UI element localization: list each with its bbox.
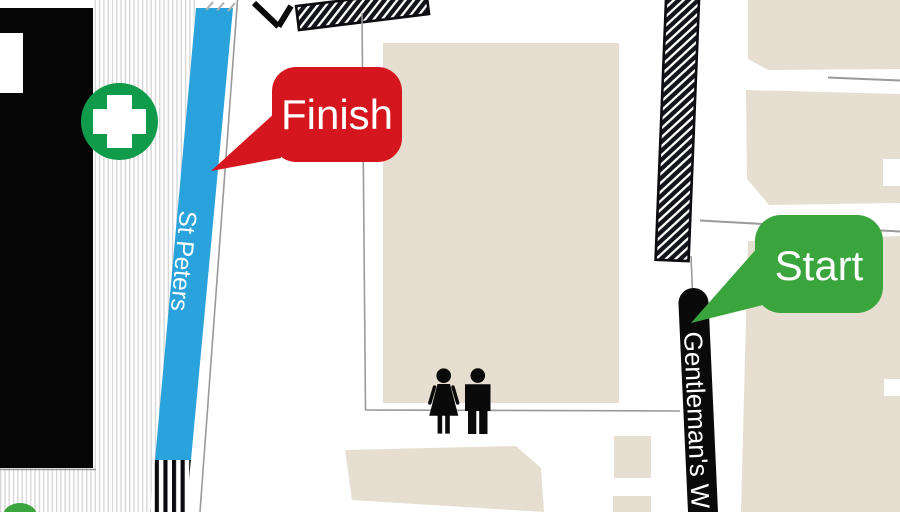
- race-route-map: St Peters: [0, 0, 900, 512]
- building-right-middle-notch: [883, 159, 900, 186]
- finish-label: Finish: [281, 91, 393, 138]
- black-building: [0, 8, 96, 470]
- building-right-bottom-notch: [884, 379, 900, 396]
- plaza-top-gap: [0, 0, 93, 8]
- pedestrian-crossing: [150, 459, 191, 512]
- building-small-b: [613, 496, 651, 512]
- first-aid-cross-icon: [81, 83, 158, 160]
- building-small-a: [614, 436, 651, 478]
- building-right-top: [748, 0, 900, 70]
- start-label: Start: [775, 242, 864, 289]
- black-building-notch: [0, 33, 23, 93]
- central-building: [383, 43, 619, 403]
- building-right-middle: [746, 90, 900, 205]
